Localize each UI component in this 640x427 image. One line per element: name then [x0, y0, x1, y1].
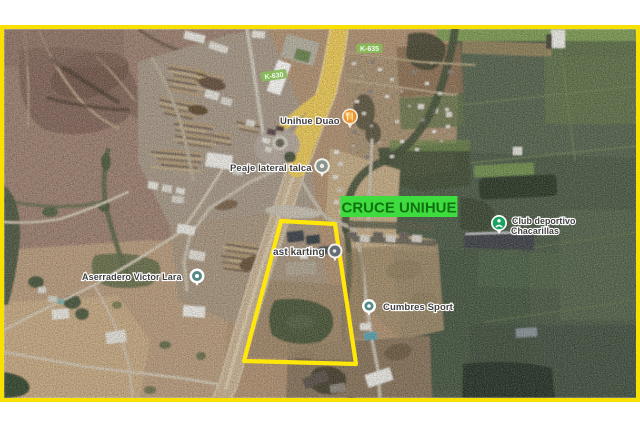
svg-text:Cumbres Sport: Cumbres Sport	[383, 302, 454, 313]
svg-text:K-635: K-635	[360, 46, 379, 53]
svg-text:Aserradero Victor Lara: Aserradero Victor Lara	[82, 272, 182, 282]
svg-text:Club deportivo: Club deportivo	[512, 216, 576, 226]
svg-text:Chacarillas: Chacarillas	[511, 226, 559, 236]
svg-text:Unihue Duao: Unihue Duao	[280, 116, 340, 127]
svg-text:Peaje lateral talca: Peaje lateral talca	[230, 163, 312, 174]
svg-text:ast karting: ast karting	[273, 247, 325, 258]
svg-text:CRUCE UNIHUE: CRUCE UNIHUE	[341, 200, 456, 217]
